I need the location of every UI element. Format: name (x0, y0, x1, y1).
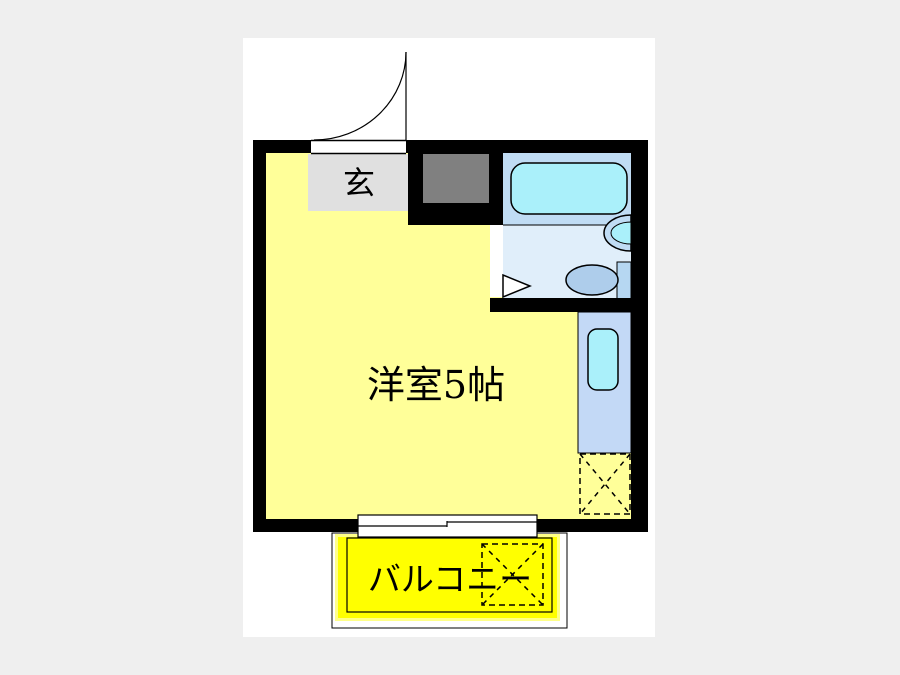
page-background: バルコニー 玄 洋室5帖 (0, 0, 900, 675)
bathroom-bottom-wall (490, 298, 648, 312)
floorplan-drawing: バルコニー 玄 洋室5帖 (243, 38, 655, 637)
closet (423, 154, 489, 203)
entry-door-opening (311, 140, 406, 154)
balcony-window (358, 515, 537, 537)
balcony: バルコニー (332, 533, 567, 628)
main-room-label: 洋室5帖 (367, 363, 505, 407)
bathtub (511, 163, 627, 214)
floorplan-canvas: バルコニー 玄 洋室5帖 (243, 38, 655, 637)
toilet-bowl (566, 265, 618, 295)
bathroom-door-opening (490, 225, 503, 297)
entrance-label: 玄 (343, 164, 375, 202)
entry-door-swing-icon (314, 52, 406, 140)
toilet-tank (617, 262, 631, 299)
kitchen-sink (588, 329, 618, 390)
balcony-label: バルコニー (368, 560, 532, 599)
